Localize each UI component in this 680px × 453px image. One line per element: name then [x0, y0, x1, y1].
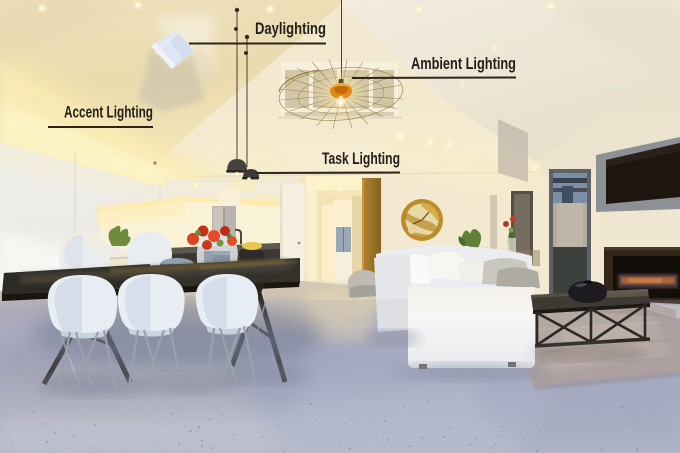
svg-text:Accent Lighting: Accent Lighting — [64, 104, 153, 122]
svg-text:Task Lighting: Task Lighting — [322, 150, 400, 168]
svg-text:Ambient Lighting: Ambient Lighting — [411, 55, 516, 73]
svg-text:Daylighting: Daylighting — [255, 20, 326, 38]
